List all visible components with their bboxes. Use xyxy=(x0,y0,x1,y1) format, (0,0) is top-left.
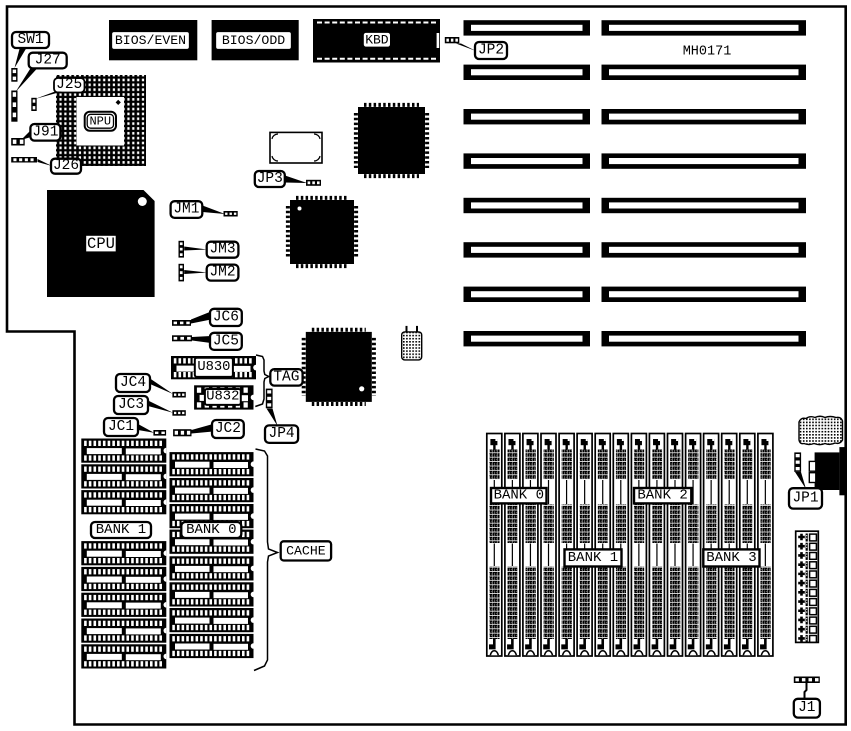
svg-text:BANK 0: BANK 0 xyxy=(186,522,236,538)
svg-text:J26: J26 xyxy=(53,158,79,174)
svg-text:J27: J27 xyxy=(35,53,61,69)
svg-text:BANK 2: BANK 2 xyxy=(637,488,687,504)
svg-text:MH0171: MH0171 xyxy=(683,45,732,60)
svg-text:BIOS/EVEN: BIOS/EVEN xyxy=(115,33,186,48)
svg-text:J91: J91 xyxy=(32,124,58,140)
svg-text:U830: U830 xyxy=(197,360,230,375)
svg-text:JC6: JC6 xyxy=(213,309,239,325)
svg-text:BANK 1: BANK 1 xyxy=(96,522,146,538)
svg-text:JC1: JC1 xyxy=(108,419,134,435)
svg-text:BANK 3: BANK 3 xyxy=(706,550,756,566)
svg-text:NPU: NPU xyxy=(89,115,111,129)
svg-text:JP3: JP3 xyxy=(257,171,283,187)
svg-text:J25: J25 xyxy=(56,77,82,93)
svg-text:JC4: JC4 xyxy=(120,375,146,391)
svg-text:CPU: CPU xyxy=(87,235,115,253)
svg-text:JP4: JP4 xyxy=(269,426,295,442)
svg-text:SW1: SW1 xyxy=(17,32,43,48)
svg-text:J1: J1 xyxy=(798,700,815,716)
svg-text:KBD: KBD xyxy=(365,32,389,47)
svg-text:JP2: JP2 xyxy=(478,43,504,59)
svg-text:CACHE: CACHE xyxy=(286,543,326,558)
svg-text:JM2: JM2 xyxy=(209,265,235,281)
svg-text:TAG: TAG xyxy=(273,369,299,385)
svg-text:BANK 1: BANK 1 xyxy=(568,550,618,566)
svg-text:JC2: JC2 xyxy=(215,421,241,437)
svg-text:JM3: JM3 xyxy=(209,242,235,258)
svg-text:JC3: JC3 xyxy=(118,397,144,413)
svg-text:BIOS/ODD: BIOS/ODD xyxy=(222,33,285,48)
svg-text:JP1: JP1 xyxy=(792,490,818,506)
svg-text:JM1: JM1 xyxy=(173,202,199,218)
svg-text:JC5: JC5 xyxy=(213,333,239,349)
svg-text:U832: U832 xyxy=(206,389,239,404)
svg-text:BANK 0: BANK 0 xyxy=(494,488,544,504)
